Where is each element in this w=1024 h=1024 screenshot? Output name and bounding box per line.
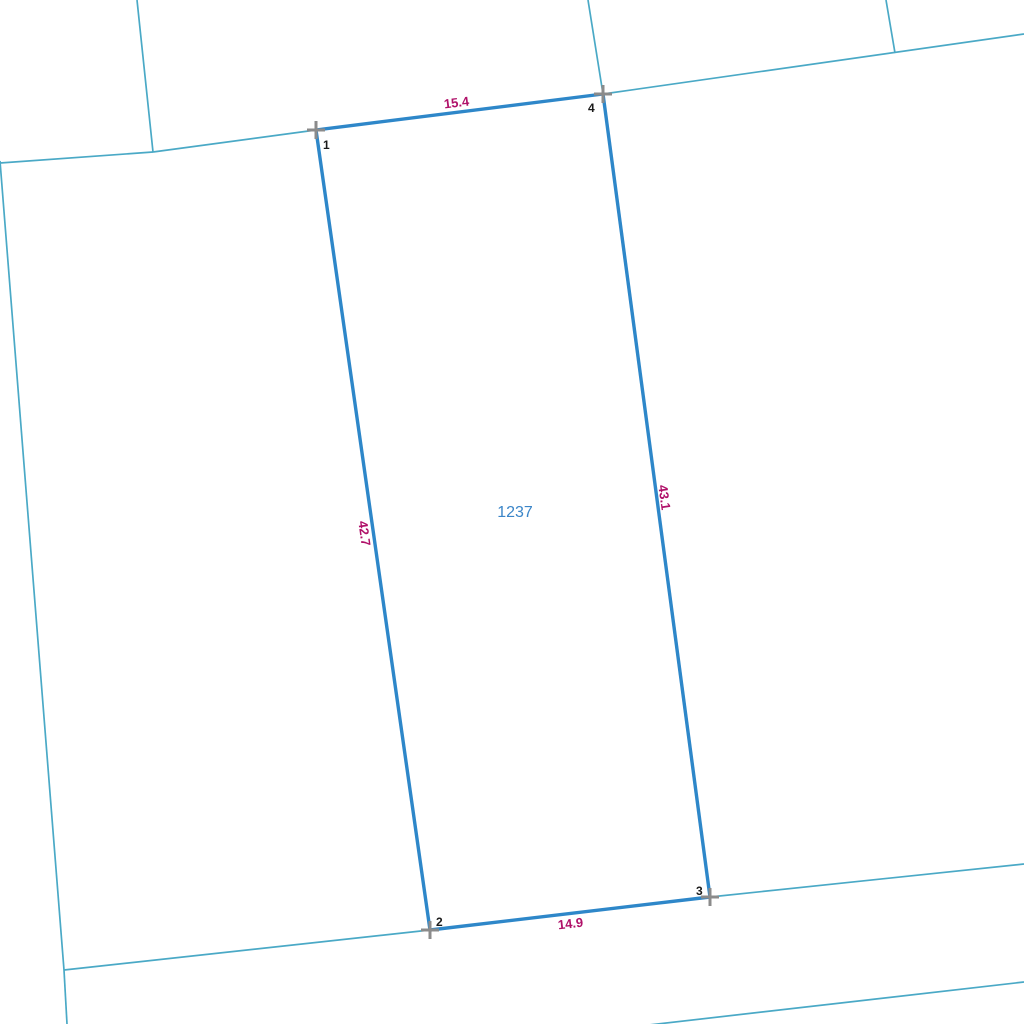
corner-marker-3 [701, 888, 719, 906]
neighbor-boundary-vertex4-to-right-edge [603, 34, 1024, 94]
parcel-edge-right [603, 94, 710, 897]
neighbor-boundary-above-vertex4 [588, 0, 603, 94]
neighbor-boundary-topright-branch [886, 0, 895, 53]
dimension-label-bottom: 14.9 [557, 915, 584, 933]
parcel-edge-left [316, 130, 430, 930]
neighbor-boundary-vertex3-to-right-edge [710, 864, 1024, 897]
neighbor-boundary-to-vertex1 [153, 130, 316, 152]
vertex-label-1: 1 [323, 138, 330, 152]
vertex-label-3: 3 [696, 884, 703, 898]
corner-marker-4 [594, 85, 612, 103]
corner-marker-1 [307, 121, 325, 139]
neighbor-boundary-left-long-lower [64, 970, 67, 1024]
neighbor-boundary-left-long [0, 161, 64, 970]
parcel-id-label[interactable]: 1237 [497, 504, 533, 521]
dimension-label-top: 15.4 [443, 93, 471, 111]
cadastral-map-canvas[interactable]: 1 2 3 4 15.4 43.1 14.9 42.7 1237 [0, 0, 1024, 1024]
vertex-label-2: 2 [436, 915, 443, 929]
dimension-label-left: 42.7 [355, 520, 373, 547]
neighbor-boundary-bottom-to-vertex2 [64, 930, 430, 970]
neighbor-boundary-topleft-to-left-edge [0, 152, 153, 163]
vertex-label-4: 4 [588, 101, 595, 115]
neighbor-boundary-topleft-vertical [137, 0, 153, 152]
neighbor-boundary-bottomright-corner [640, 982, 1024, 1024]
